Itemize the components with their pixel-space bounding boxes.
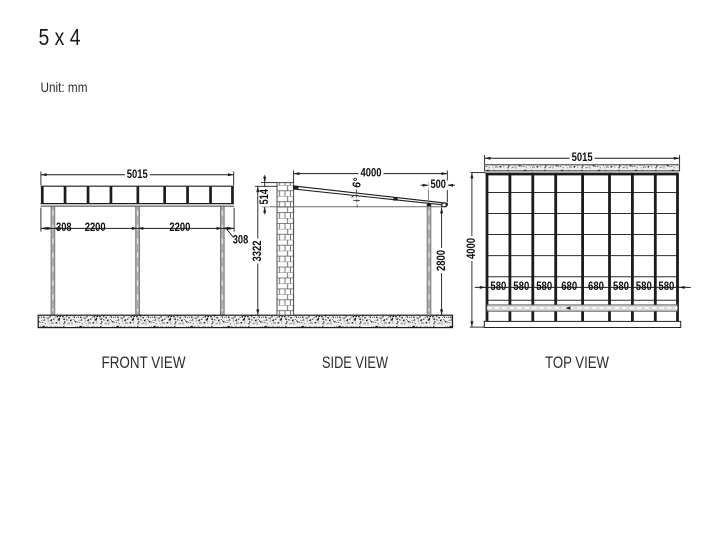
svg-text:2200: 2200	[85, 222, 106, 234]
svg-text:SIDE VIEW: SIDE VIEW	[322, 354, 388, 372]
svg-text:5015: 5015	[572, 152, 593, 164]
svg-text:580: 580	[658, 281, 674, 293]
svg-text:4000: 4000	[466, 238, 478, 259]
svg-text:580: 580	[536, 281, 552, 293]
svg-text:580: 580	[490, 281, 506, 293]
svg-text:TOP VIEW: TOP VIEW	[545, 354, 609, 372]
svg-text:308: 308	[56, 222, 72, 234]
svg-text:2800: 2800	[436, 250, 448, 271]
svg-text:680: 680	[588, 281, 604, 293]
svg-text:580: 580	[513, 281, 529, 293]
svg-text:Unit: mm: Unit: mm	[41, 79, 88, 95]
svg-text:2200: 2200	[169, 222, 190, 234]
svg-text:5015: 5015	[127, 169, 148, 181]
svg-text:500: 500	[430, 179, 446, 191]
svg-text:FRONT VIEW: FRONT VIEW	[102, 354, 186, 372]
svg-text:680: 680	[561, 281, 577, 293]
svg-text:4000: 4000	[361, 168, 382, 180]
svg-text:3322: 3322	[252, 241, 264, 262]
svg-text:308: 308	[233, 234, 249, 246]
svg-text:580: 580	[636, 281, 652, 293]
svg-text:514: 514	[259, 189, 271, 205]
svg-text:5 x 4: 5 x 4	[39, 24, 81, 50]
svg-text:580: 580	[613, 281, 629, 293]
